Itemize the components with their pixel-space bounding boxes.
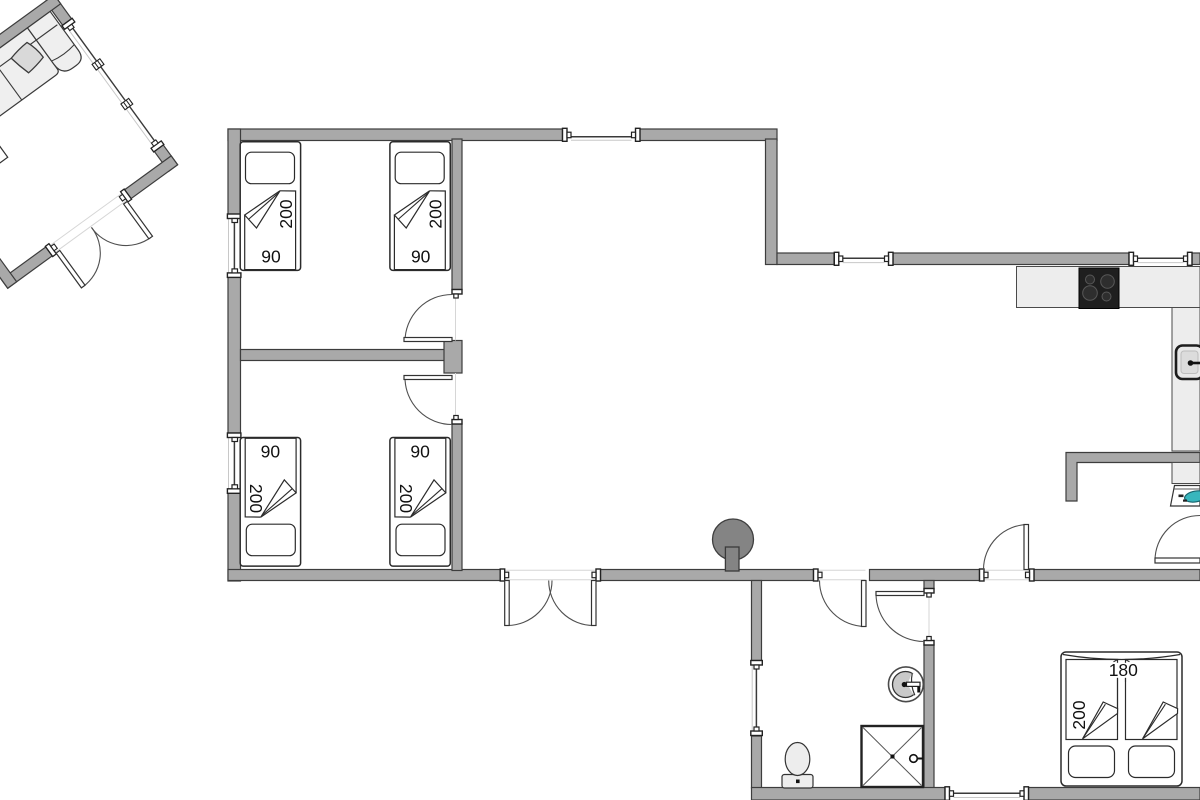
svg-text:200: 200 [396, 484, 416, 513]
svg-text:180: 180 [1109, 660, 1138, 680]
svg-text:200: 200 [426, 199, 446, 228]
svg-text:90: 90 [410, 442, 430, 462]
svg-text:200: 200 [276, 199, 296, 228]
svg-text:200: 200 [246, 484, 266, 513]
svg-text:90: 90 [261, 247, 281, 267]
svg-text:90: 90 [261, 442, 281, 462]
svg-text:90: 90 [411, 247, 431, 267]
svg-text:200: 200 [1069, 700, 1089, 729]
